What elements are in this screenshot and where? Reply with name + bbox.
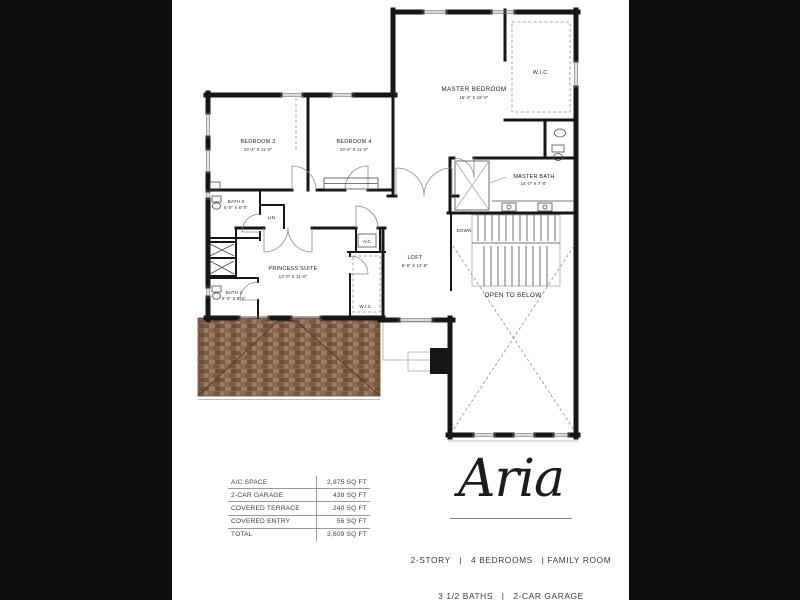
area-value: 2,875 SQ FT (316, 476, 370, 488)
area-summary-table: A/C SPACE 2,875 SQ FT 2-CAR GARAGE 438 S… (228, 476, 370, 541)
label-master-bath-dims: 16'-0" X 7'-0" (521, 181, 548, 186)
features-line-1: 2-STORY | 4 BEDROOMS | FAMILY ROOM (408, 554, 614, 566)
floor-plan-drawing: MASTER BEDROOM 15'-4" X 18'-0" W.I.C. BE… (172, 0, 629, 462)
area-label: 2-CAR GARAGE (228, 492, 316, 499)
plan-name: Aria (408, 448, 614, 510)
label-wic-princess: W.I.C. (359, 304, 372, 309)
title-block: Aria 2-STORY | 4 BEDROOMS | FAMILY ROOM … (408, 448, 614, 600)
area-value: 438 SQ FT (316, 489, 370, 501)
table-row: COVERED TERRACE 240 SQ FT (228, 502, 370, 515)
label-bath3-dims: 5'-0" X 8'-0" (224, 205, 248, 210)
plan-sheet: MASTER BEDROOM 15'-4" X 18'-0" W.I.C. BE… (172, 0, 629, 600)
stairs (472, 215, 560, 286)
area-label: COVERED TERRACE (228, 505, 316, 512)
closet-dashes (210, 22, 570, 312)
label-bedroom3-dims: 10'-4" X 11'-0" (244, 147, 273, 152)
label-master-bedroom-dims: 15'-4" X 18'-0" (460, 95, 489, 100)
table-row: A/C SPACE 2,875 SQ FT (228, 476, 370, 489)
title-divider (450, 518, 572, 519)
label-princess-suite: PRINCESS SUITE (268, 266, 317, 272)
label-stairs-down: DOWN (457, 228, 472, 233)
label-bedroom3: BEDROOM 3 (240, 139, 275, 145)
label-princess-suite-dims: 13'-0" X 11'-0" (279, 274, 308, 279)
label-bath2-dims: 5'-0" X 8'-0" (222, 296, 246, 301)
table-row: 2-CAR GARAGE 438 SQ FT (228, 489, 370, 502)
area-label: TOTAL (228, 531, 316, 538)
label-bedroom4: BEDROOM 4 (336, 139, 371, 145)
label-linen: LIN. (268, 215, 277, 220)
table-row: COVERED ENTRY 56 SQ FT (228, 516, 370, 529)
area-label: COVERED ENTRY (228, 518, 316, 525)
letterbox-background: MASTER BEDROOM 15'-4" X 18'-0" W.I.C. BE… (0, 0, 800, 600)
label-loft-dims: 8'-6" X 13'-8" (402, 263, 429, 268)
open-to-below-x (453, 246, 574, 430)
area-value: 240 SQ FT (316, 502, 370, 514)
label-open-to-below: OPEN TO BELOW (485, 292, 542, 299)
label-master-bath: MASTER BATH (513, 174, 554, 180)
table-row: TOTAL 3,609 SQ FT (228, 529, 370, 541)
label-bedroom4-dims: 10'-6" X 11'-0" (340, 147, 369, 152)
label-wic-master: W.I.C. (533, 70, 549, 76)
label-bath2: BATH 2 (226, 290, 243, 295)
area-value: 56 SQ FT (316, 516, 370, 528)
area-value: 3,609 SQ FT (316, 529, 370, 541)
label-ac-closet: A/C (363, 239, 371, 244)
master-bath-leader-line (490, 177, 506, 183)
area-label: A/C SPACE (228, 479, 316, 486)
label-master-bedroom: MASTER BEDROOM (441, 86, 506, 93)
label-loft: LOFT (408, 255, 423, 261)
features-line-2: 3 1/2 BATHS | 2-CAR GARAGE (408, 590, 614, 600)
label-bath3: BATH 3 (228, 199, 245, 204)
covered-terrace-roof (198, 318, 380, 400)
